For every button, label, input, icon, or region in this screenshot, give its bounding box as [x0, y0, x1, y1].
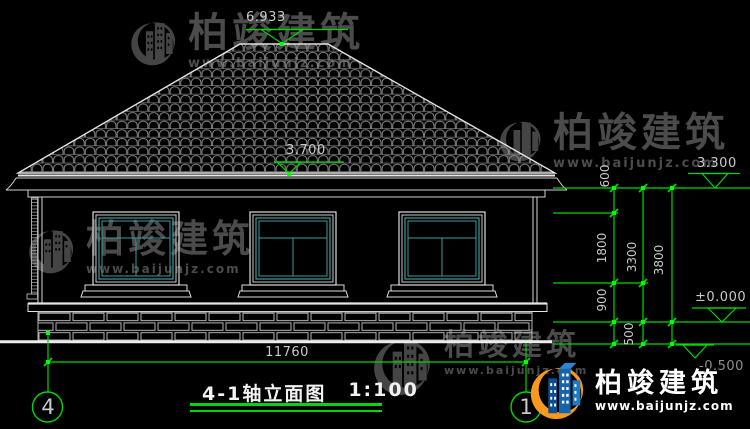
elevation-marker-cornice: [688, 174, 740, 189]
wall: [38, 197, 537, 303]
brand-logo: 柏竣建筑 www.baijunjz.com: [527, 356, 734, 424]
belt-course: [28, 303, 547, 312]
drawing-scale-text: 1:100: [348, 379, 418, 406]
dim-label-1800: 1800: [595, 225, 609, 271]
window-1: [81, 212, 191, 297]
brand-logo-url: www.baijunjz.com: [595, 399, 734, 413]
dim-label-900: 900: [595, 277, 609, 323]
dim-label-500: 500: [622, 311, 636, 357]
title-underline-thick: [190, 403, 382, 406]
elevation-marker-ridge: [246, 30, 348, 44]
axis-bubble-4: 4: [31, 391, 65, 423]
downspout: [27, 198, 38, 299]
level-label-zero: ±0.000: [695, 290, 746, 305]
title-underline-thin: [190, 410, 382, 412]
dim-label-3300: 3300: [625, 234, 639, 280]
dim-label-600: 600: [598, 153, 612, 199]
drawing-title: 4-1轴立面图 1:100: [202, 379, 419, 406]
cornice: [6, 178, 567, 197]
cad-elevation-drawing: 柏竣建筑 www.baijunjz.com 柏竣建筑 www.baijunjz.…: [0, 0, 750, 429]
dim-label-total-width: 11760: [265, 345, 309, 360]
brand-logo-text: 柏竣建筑: [595, 370, 734, 398]
level-label-ridge: 6.933: [246, 10, 286, 25]
drawing-title-text: 4-1轴立面图: [202, 379, 326, 406]
elevation-marker-zero: [692, 308, 746, 322]
dim-label-3800: 3800: [652, 237, 666, 283]
window-2: [238, 212, 348, 297]
window-3: [387, 212, 497, 297]
level-label-cornice: 3.300: [697, 156, 737, 171]
brand-logo-icon: [527, 356, 589, 424]
level-label-roof: 3.700: [286, 143, 326, 158]
brick-plinth: [38, 312, 532, 341]
